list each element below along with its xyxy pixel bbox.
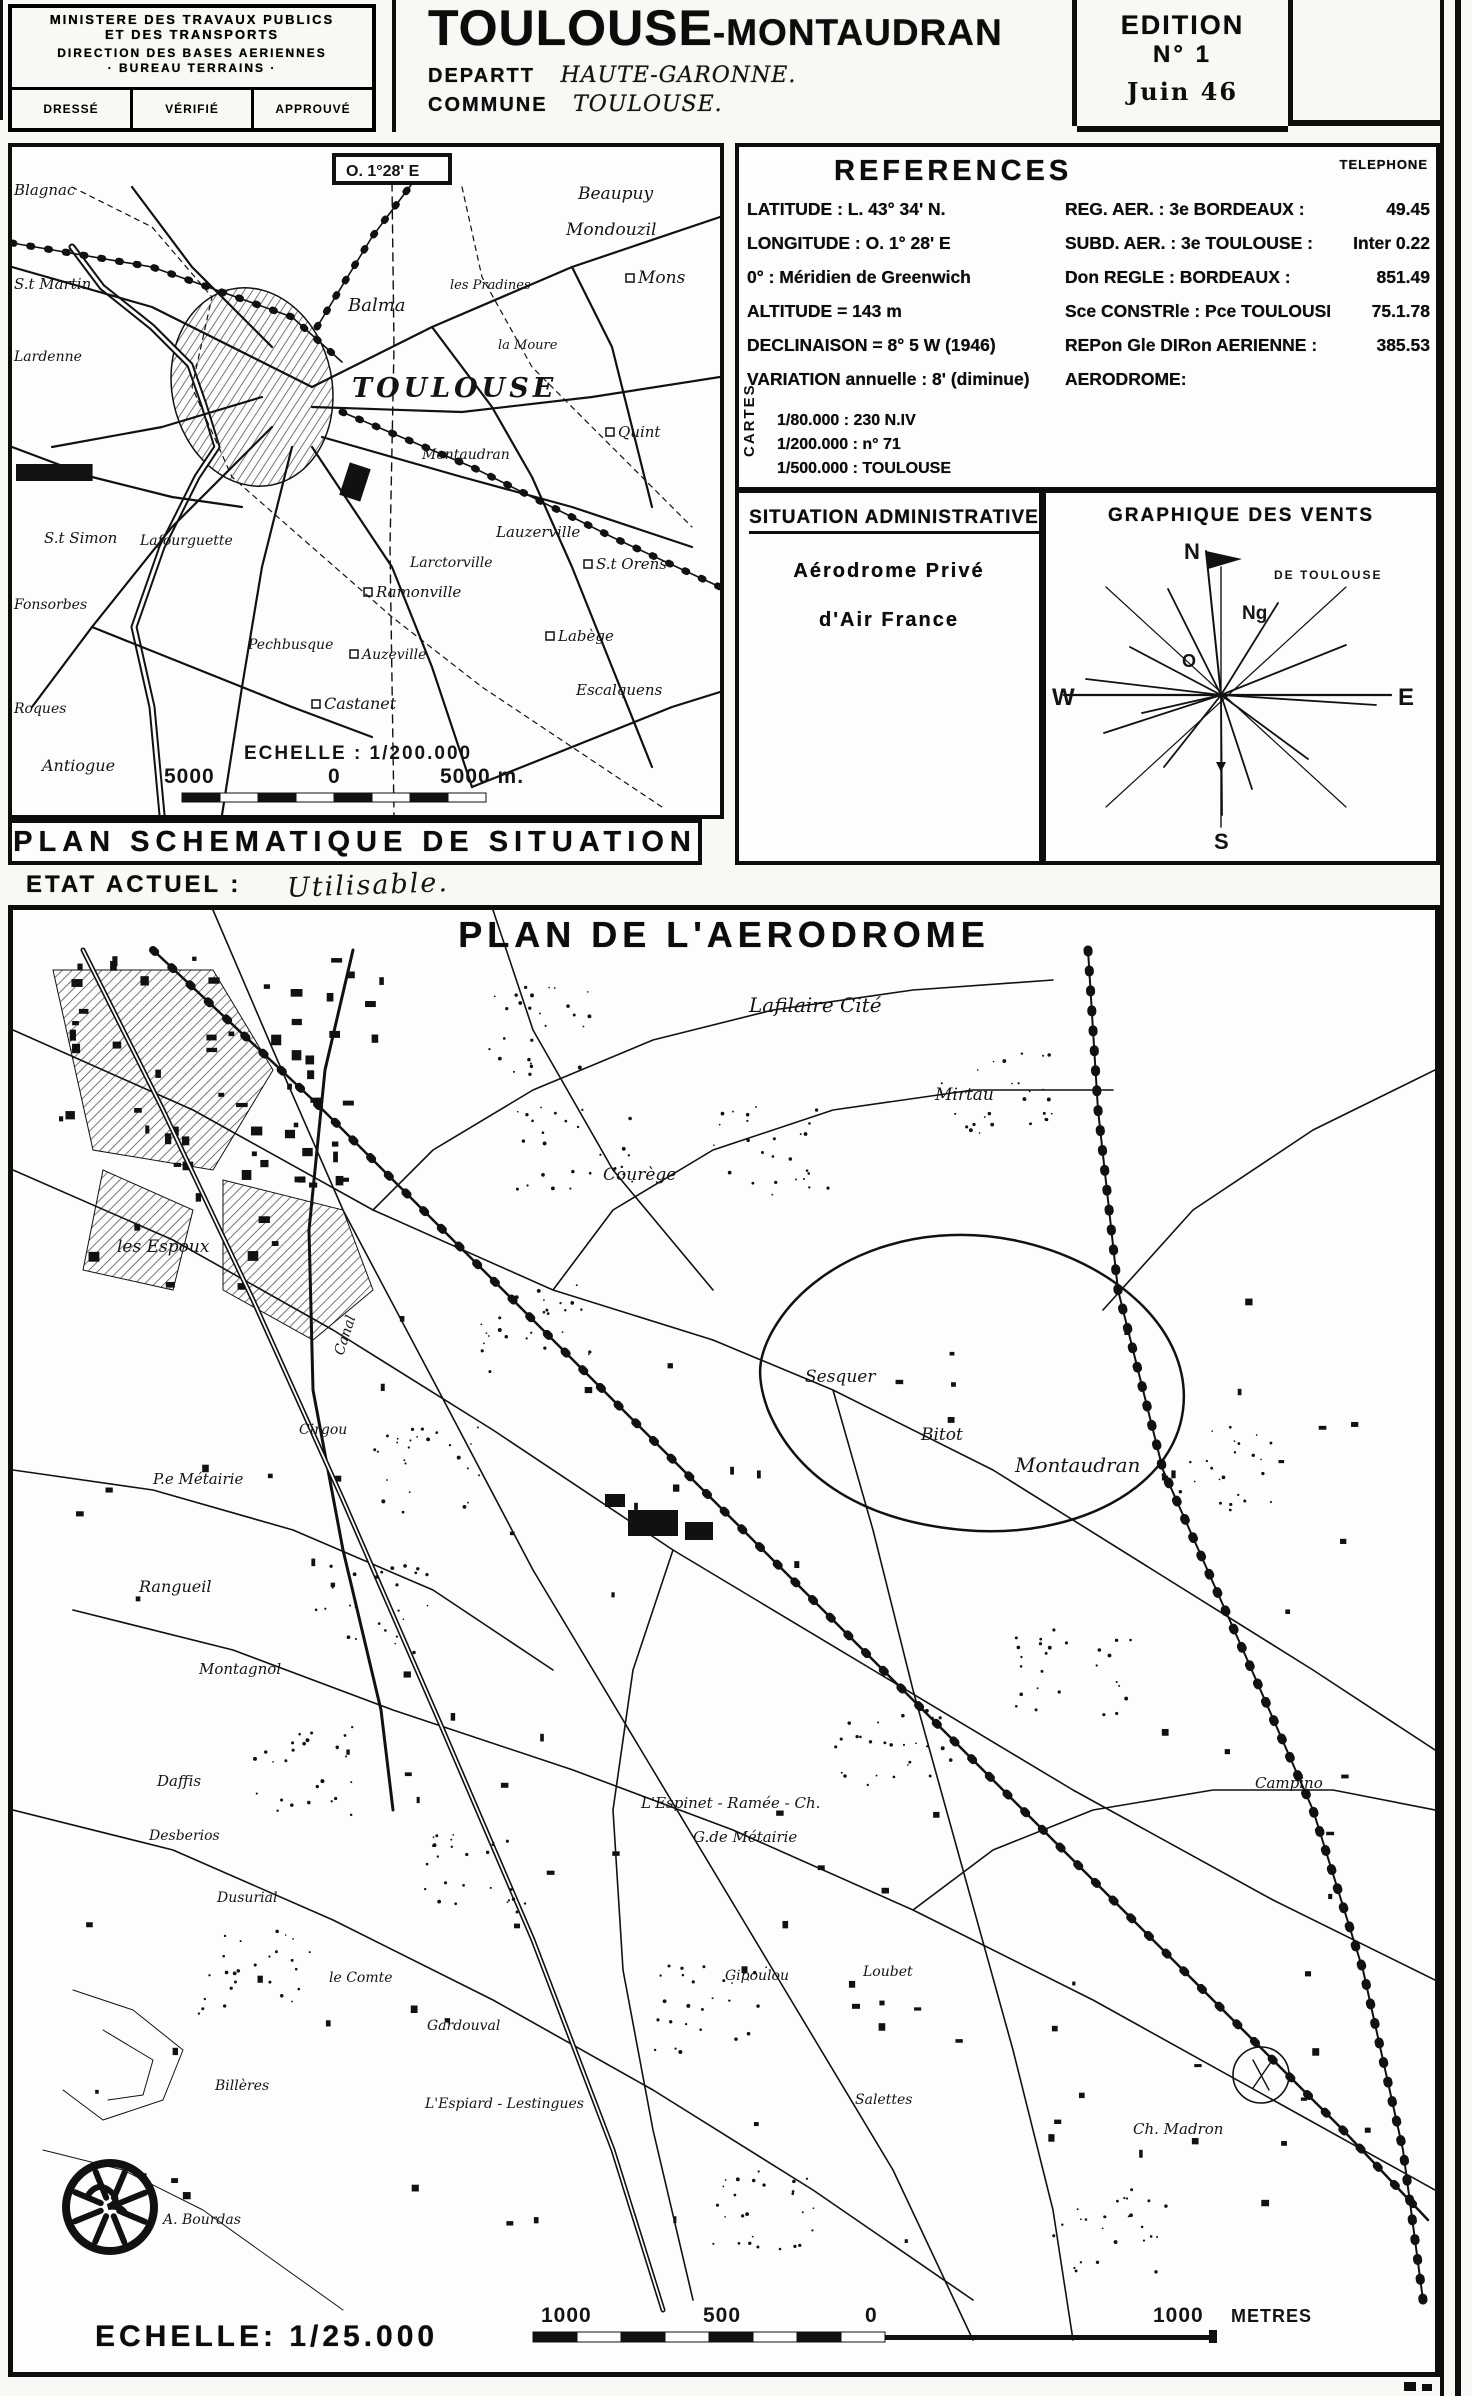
reference-cell: REG. AER. : 3e BORDEAUX : <box>1065 199 1330 220</box>
edition-title: EDITION <box>1077 10 1288 41</box>
map-label: les Pradines <box>450 278 531 293</box>
meridian-label: O. 1°28' E <box>346 163 420 180</box>
winds-panel: GRAPHIQUE DES VENTS DE TOULOUSENNgOWES <box>1039 493 1436 861</box>
scale-tick: 0 <box>865 2304 878 2327</box>
carte-row: 1/500.000 : TOULOUSE <box>777 457 951 481</box>
reference-cell: VARIATION annuelle : 8' (diminue) <box>747 369 1065 390</box>
map-label: Blagnac <box>13 181 76 199</box>
aerodrome-sheet: { "header": { "stamp": { "line1": "MINIS… <box>0 0 1472 2396</box>
situation-line: Aérodrome Privé <box>739 560 1039 583</box>
map-label: Roques <box>13 701 66 717</box>
commune-label: COMMUNE <box>428 94 548 116</box>
map-label: Mondouzil <box>565 220 657 240</box>
stamp-line: DIRECTION DES BASES AERIENNES <box>12 46 372 61</box>
map-label: Montagnol <box>198 1660 281 1678</box>
situation-map: O. 1°28' EBlagnacS.t MartinLardenneBeaup… <box>12 147 720 815</box>
scale-tick: 5000 m. <box>440 765 524 788</box>
reference-cell: ALTITUDE = 143 m <box>747 301 1065 322</box>
cartes-block: CARTES 1/80.000 : 230 N.IV1/200.000 : n°… <box>747 407 1167 483</box>
aerodrome-map-panel: PLAN DE L'AERODROME Lafilaire CitéMirtau… <box>8 905 1440 2377</box>
map-label: Gardouval <box>427 2018 500 2034</box>
map-label: Montaudran <box>1014 1453 1140 1477</box>
map-label: le Comte <box>329 1970 393 1986</box>
page-border-right-outer <box>1455 0 1461 2396</box>
map-label: Antiogue <box>40 756 115 775</box>
edition-bottom-line <box>1288 120 1444 126</box>
compass-label: E <box>1398 684 1414 711</box>
references-panel: REFERENCES TELEPHONE LATITUDE : L. 43° 3… <box>735 143 1440 865</box>
reference-row: VARIATION annuelle : 8' (diminue)AERODRO… <box>747 369 1430 403</box>
map-label: Fonsorbes <box>13 597 87 613</box>
situation-administrative: SITUATION ADMINISTRATIVE Aérodrome Privé… <box>739 493 1039 861</box>
reference-row: 0° : Méridien de GreenwichDon REGLE : BO… <box>747 267 1430 301</box>
map-label: Pechbusque <box>247 637 333 653</box>
map-label: G.de Métairie <box>693 1828 797 1846</box>
stamp-line: · BUREAU TERRAINS · <box>12 61 372 76</box>
map-label: Gipoulou <box>725 1968 789 1984</box>
map-label: les Espoux <box>117 1237 210 1257</box>
compass-label: S <box>1214 829 1229 854</box>
page-border-left <box>0 0 3 120</box>
dept-label: DEPARTT <box>428 65 535 87</box>
stamp-cell: APPROUVÉ <box>254 90 372 128</box>
commune-value: TOULOUSE. <box>573 92 723 117</box>
map-label: Beaupuy <box>577 184 653 204</box>
situation-map-panel: O. 1°28' EBlagnacS.t MartinLardenneBeaup… <box>8 143 724 819</box>
map-label: Bitot <box>920 1425 963 1445</box>
reference-cell: 49.45 <box>1330 199 1430 220</box>
aerodrome-scale-label: ECHELLE: 1/25.000 <box>95 2320 438 2354</box>
map-label: Labège <box>557 627 614 645</box>
reference-row: ALTITUDE = 143 mSce CONSTRle : Pce TOULO… <box>747 301 1430 335</box>
header-divider <box>392 0 396 132</box>
title-suffix: -MONTAUDRAN <box>713 12 1003 53</box>
map-label: Mirtau <box>934 1085 994 1105</box>
map-label: LA REYNIE <box>21 468 91 480</box>
scale-tick: METRES <box>1231 2306 1312 2326</box>
map-label: S.t Martin <box>14 275 91 293</box>
map-label: Loubet <box>862 1964 913 1980</box>
map-label: Ramonville <box>375 583 461 601</box>
edition-divider-right <box>1288 0 1293 126</box>
scale-tick: 5000 <box>164 765 215 788</box>
reference-cell: SUBD. AER. : 3e TOULOUSE : <box>1065 233 1330 254</box>
reference-row: LONGITUDE : O. 1° 28' ESUBD. AER. : 3e T… <box>747 233 1430 267</box>
reference-cell: 0° : Méridien de Greenwich <box>747 267 1065 288</box>
map-label: Balma <box>347 295 406 316</box>
etat-label: ETAT ACTUEL : <box>26 871 241 899</box>
compass-label: N <box>1184 539 1200 564</box>
map-label: Rangueil <box>138 1577 212 1596</box>
reference-row: LATITUDE : L. 43° 34' N.REG. AER. : 3e B… <box>747 199 1430 233</box>
reference-cell: LONGITUDE : O. 1° 28' E <box>747 233 1065 254</box>
stamp-cell: DRESSÉ <box>12 90 133 128</box>
map-label: TOULOUSE <box>352 373 557 404</box>
map-label: Courège <box>603 1165 676 1185</box>
map-label: Auzeville <box>360 647 426 663</box>
map-label: Lafourguette <box>139 533 233 549</box>
wind-rose: DE TOULOUSENNgOWES <box>1046 527 1436 857</box>
map-label: L'Espinet - Ramée - Ch. <box>640 1794 820 1812</box>
scale-tick: 1000 <box>541 2304 592 2327</box>
dept-line: DEPARTT HAUTE-GARONNE. <box>428 63 1058 88</box>
commune-line: COMMUNE TOULOUSE. <box>428 92 1058 117</box>
situation-scale-label: ECHELLE : 1/200.000 <box>244 743 472 764</box>
map-label: A. Bourdas <box>161 2212 241 2228</box>
situation-banner: PLAN SCHEMATIQUE DE SITUATION <box>8 819 702 865</box>
scale-tick: 500 <box>703 2304 741 2327</box>
situation-line: d'Air France <box>739 609 1039 632</box>
title-block: TOULOUSE-MONTAUDRAN DEPARTT HAUTE-GARONN… <box>428 2 1058 117</box>
map-label: Castanet <box>324 694 397 713</box>
carte-row: 1/200.000 : n° 71 <box>777 433 951 457</box>
winds-subtitle: DE TOULOUSE <box>1274 568 1382 582</box>
edition-number: N° 1 <box>1077 41 1288 69</box>
scale-tick: 0 <box>328 765 341 788</box>
map-label: Sesquer <box>805 1367 876 1387</box>
map-label: Salettes <box>855 2092 912 2108</box>
reference-cell: Don REGLE : BORDEAUX : <box>1065 267 1330 288</box>
registration-mark <box>1404 2382 1416 2391</box>
map-label: Quint <box>618 423 661 441</box>
telephone-header: TELEPHONE <box>1340 157 1428 172</box>
map-label: Billères <box>214 2078 269 2094</box>
page-title: TOULOUSE-MONTAUDRAN <box>428 2 1058 59</box>
reference-cell: 385.53 <box>1330 335 1430 356</box>
winds-title: GRAPHIQUE DES VENTS <box>1046 505 1436 527</box>
map-label: Cirgou <box>299 1422 347 1438</box>
stamp-line: MINISTERE DES TRAVAUX PUBLICS <box>12 12 372 27</box>
map-label: P.e Métairie <box>152 1470 243 1488</box>
stamp-cells: DRESSÉ VÉRIFIÉ APPROUVÉ <box>12 87 372 128</box>
map-label: Lafilaire Cité <box>748 993 882 1017</box>
edition-box: EDITION N° 1 Juin 46 <box>1077 0 1288 132</box>
edition-date: Juin 46 <box>1077 77 1288 106</box>
reference-cell: 75.1.78 <box>1330 301 1430 322</box>
map-label: Lardenne <box>13 349 82 365</box>
compass-label: O <box>1182 651 1196 671</box>
map-label: Montaudran <box>421 447 510 463</box>
map-label: Mons <box>637 268 686 288</box>
stamp-cell: VÉRIFIÉ <box>133 90 254 128</box>
map-label: Escalquens <box>575 681 663 699</box>
map-label: Lauzerville <box>495 523 580 541</box>
reference-cell: LATITUDE : L. 43° 34' N. <box>747 199 1065 220</box>
map-label: S.t Orens <box>596 555 667 573</box>
map-label: Larctorville <box>409 555 493 571</box>
ministry-stamp: MINISTERE DES TRAVAUX PUBLICS ET DES TRA… <box>8 4 376 132</box>
title-main: TOULOUSE <box>428 0 713 56</box>
page-border-right-inner <box>1440 0 1444 2396</box>
etat-value: Utilisable. <box>287 867 450 904</box>
reference-cell: 851.49 <box>1330 267 1430 288</box>
scale-tick: 1000 <box>1153 2304 1204 2327</box>
aerodrome-map: Lafilaire CitéMirtauCourègeles EspouxCan… <box>13 910 1435 2372</box>
map-label: la Moure <box>498 338 558 353</box>
map-label: L'Espiard - Lestingues <box>424 2096 584 2112</box>
reference-cell: REPon Gle DIRon AERIENNE : <box>1065 335 1330 356</box>
registration-mark <box>1422 2384 1432 2391</box>
map-label: Campino <box>1255 1774 1323 1792</box>
carte-row: 1/80.000 : 230 N.IV <box>777 409 951 433</box>
reference-row: DECLINAISON = 8° 5 W (1946)REPon Gle DIR… <box>747 335 1430 369</box>
reference-cell: AERODROME: <box>1065 369 1330 390</box>
stamp-line: ET DES TRANSPORTS <box>12 27 372 42</box>
dept-value: HAUTE-GARONNE. <box>561 63 797 88</box>
compass-label: W <box>1052 684 1075 711</box>
map-label: Dusurial <box>216 1890 277 1906</box>
reference-cell: Inter 0.22 <box>1330 233 1430 254</box>
aerodrome-scale: 100050001000METRES <box>533 2304 1312 2343</box>
situation-administrative-title: SITUATION ADMINISTRATIVE <box>749 507 1039 534</box>
reference-cell: DECLINAISON = 8° 5 W (1946) <box>747 335 1065 356</box>
cartes-label: CARTES <box>741 383 758 457</box>
map-label: Desberios <box>148 1828 220 1844</box>
etat-actuel-row: ETAT ACTUEL : Utilisable. <box>8 865 1440 905</box>
reference-cell: Sce CONSTRle : Pce TOULOUSE : <box>1065 301 1330 322</box>
map-label: Daffis <box>156 1772 201 1790</box>
references-rows: LATITUDE : L. 43° 34' N.REG. AER. : 3e B… <box>747 199 1430 403</box>
round-emblem <box>66 2163 154 2251</box>
references-title: REFERENCES <box>834 155 1072 188</box>
compass-label: Ng <box>1242 603 1267 624</box>
map-label: Ch. Madron <box>1133 2120 1223 2138</box>
aerodrome-map-title: PLAN DE L'AERODROME <box>13 914 1435 956</box>
cartes-rows: 1/80.000 : 230 N.IV1/200.000 : n° 711/50… <box>777 409 951 481</box>
map-label: S.t Simon <box>44 529 117 547</box>
